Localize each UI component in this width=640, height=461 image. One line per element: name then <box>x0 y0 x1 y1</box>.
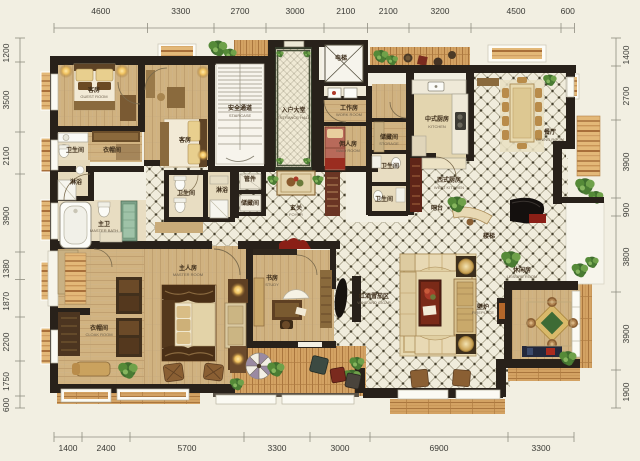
svg-text:WORK ROOM: WORK ROOM <box>336 112 362 117</box>
svg-text:1400: 1400 <box>59 443 78 453</box>
svg-text:3800: 3800 <box>621 247 631 266</box>
svg-text:5700: 5700 <box>178 443 197 453</box>
svg-text:DINING ROOM: DINING ROOM <box>536 137 564 142</box>
svg-text:WINE AND CIGAR: WINE AND CIGAR <box>357 300 391 305</box>
svg-text:6900: 6900 <box>430 443 449 453</box>
svg-text:管件: 管件 <box>244 175 256 183</box>
svg-text:客房: 客房 <box>87 86 100 94</box>
svg-text:1400: 1400 <box>621 45 631 64</box>
svg-text:1900: 1900 <box>621 382 631 401</box>
svg-text:3300: 3300 <box>171 6 190 16</box>
svg-text:书房: 书房 <box>266 274 278 282</box>
svg-text:主卫: 主卫 <box>98 220 110 228</box>
svg-text:玄关: 玄关 <box>290 204 302 212</box>
svg-text:电梯: 电梯 <box>335 54 347 62</box>
svg-text:3300: 3300 <box>268 443 287 453</box>
svg-text:3300: 3300 <box>532 443 551 453</box>
svg-text:2400: 2400 <box>97 443 116 453</box>
svg-text:中式厨房: 中式厨房 <box>425 115 449 123</box>
svg-text:3900: 3900 <box>621 324 631 343</box>
svg-text:2100: 2100 <box>1 146 11 165</box>
svg-text:4600: 4600 <box>91 6 110 16</box>
svg-text:3900: 3900 <box>1 206 11 225</box>
svg-text:佣人房: 佣人房 <box>338 140 357 148</box>
svg-text:吧台: 吧台 <box>431 204 443 212</box>
svg-text:休闲房: 休闲房 <box>512 266 531 274</box>
svg-text:卫生间: 卫生间 <box>66 146 84 154</box>
svg-text:600: 600 <box>561 6 575 16</box>
svg-text:LEISURE ROOM: LEISURE ROOM <box>507 274 538 279</box>
svg-text:600: 600 <box>1 398 11 412</box>
svg-text:淋浴: 淋浴 <box>216 186 229 194</box>
svg-text:3000: 3000 <box>286 6 305 16</box>
svg-text:2100: 2100 <box>336 6 355 16</box>
svg-text:CLOAK ROOM: CLOAK ROOM <box>85 332 112 337</box>
svg-text:入户大堂: 入户大堂 <box>280 106 305 114</box>
svg-text:FIREPLACE: FIREPLACE <box>472 310 495 315</box>
svg-text:3900: 3900 <box>621 152 631 171</box>
svg-text:储藏间: 储藏间 <box>379 133 398 141</box>
svg-text:红酒雪茄区: 红酒雪茄区 <box>359 292 389 300</box>
svg-text:3500: 3500 <box>1 90 11 109</box>
svg-text:楼梯: 楼梯 <box>483 232 495 240</box>
svg-text:KITCHEN: KITCHEN <box>428 124 446 129</box>
svg-text:MAID ROOM: MAID ROOM <box>336 148 360 153</box>
svg-text:1380: 1380 <box>1 259 11 278</box>
svg-text:客房: 客房 <box>178 136 191 144</box>
svg-text:MASTER BATH: MASTER BATH <box>90 228 118 233</box>
svg-text:WEST KITCHEN: WEST KITCHEN <box>434 185 464 190</box>
svg-text:1870: 1870 <box>1 292 11 311</box>
svg-text:FOYER: FOYER <box>289 212 303 217</box>
svg-text:淋浴: 淋浴 <box>70 178 83 186</box>
svg-text:STAIRCASE: STAIRCASE <box>229 113 252 118</box>
svg-text:4500: 4500 <box>507 6 526 16</box>
svg-text:西式厨房: 西式厨房 <box>437 176 461 184</box>
svg-text:900: 900 <box>621 203 631 217</box>
svg-text:STORAGE: STORAGE <box>379 141 399 146</box>
svg-text:3000: 3000 <box>331 443 350 453</box>
svg-text:STUDY: STUDY <box>265 282 279 287</box>
svg-text:安全通道: 安全通道 <box>228 104 252 112</box>
svg-text:卫生间: 卫生间 <box>375 195 393 203</box>
svg-text:2700: 2700 <box>621 86 631 105</box>
svg-text:储藏间: 储藏间 <box>240 199 259 207</box>
svg-text:卫生间: 卫生间 <box>381 162 399 170</box>
svg-text:3200: 3200 <box>431 6 450 16</box>
svg-text:1750: 1750 <box>1 372 11 391</box>
svg-text:2700: 2700 <box>231 6 250 16</box>
svg-text:MASTER ROOM: MASTER ROOM <box>173 272 203 277</box>
svg-text:2100: 2100 <box>379 6 398 16</box>
svg-text:2200: 2200 <box>1 332 11 351</box>
svg-text:主人房: 主人房 <box>179 264 197 272</box>
svg-text:GUEST ROOM: GUEST ROOM <box>80 94 107 99</box>
svg-text:卫生间: 卫生间 <box>177 189 195 197</box>
svg-text:衣帽间: 衣帽间 <box>103 146 121 154</box>
svg-text:ENTRANCE HALL: ENTRANCE HALL <box>277 115 311 120</box>
svg-text:衣帽间: 衣帽间 <box>90 324 108 332</box>
svg-text:餐厅: 餐厅 <box>543 128 556 136</box>
svg-text:工作房: 工作房 <box>340 104 358 112</box>
svg-text:1200: 1200 <box>1 43 11 62</box>
